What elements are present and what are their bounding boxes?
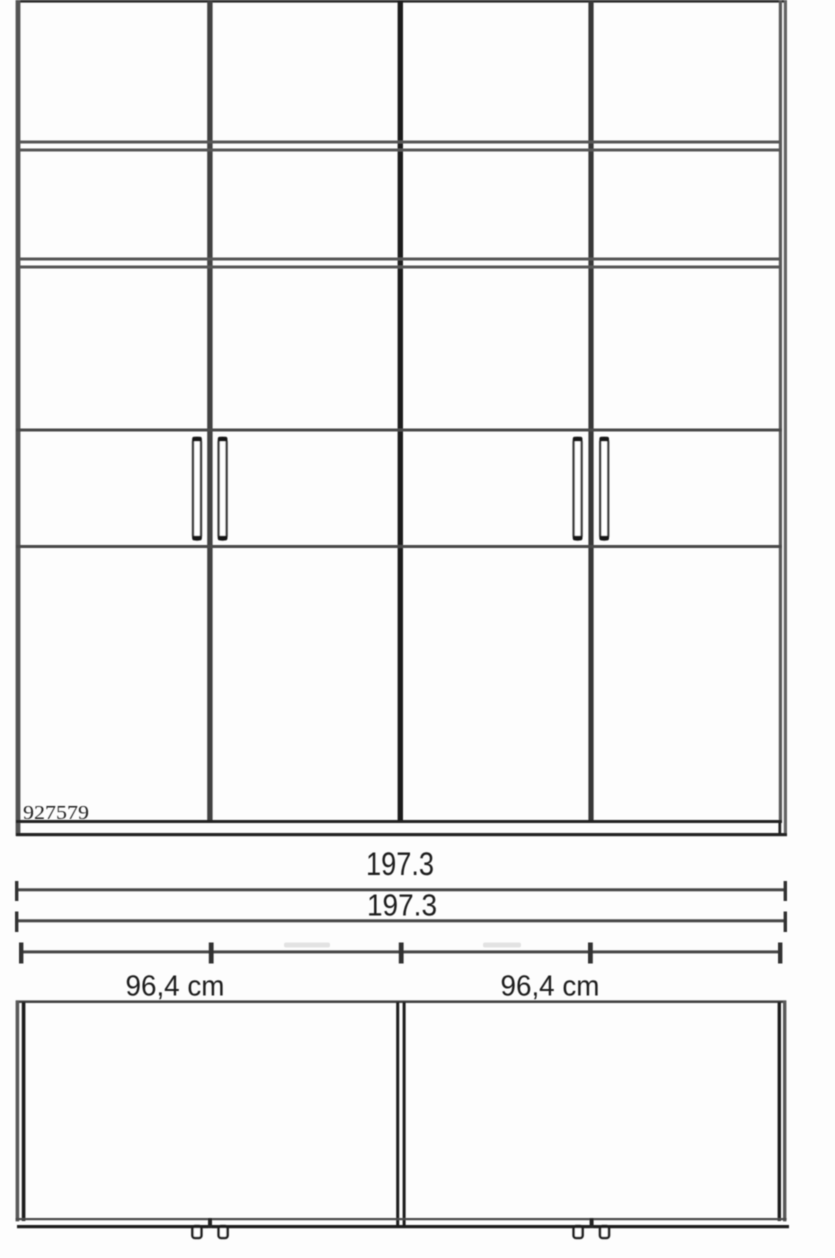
svg-text:96,4 cm: 96,4 cm	[501, 970, 600, 1002]
svg-text:197.3: 197.3	[366, 846, 434, 882]
svg-text:96,4 cm: 96,4 cm	[126, 970, 225, 1002]
svg-text:197.3: 197.3	[367, 888, 437, 923]
